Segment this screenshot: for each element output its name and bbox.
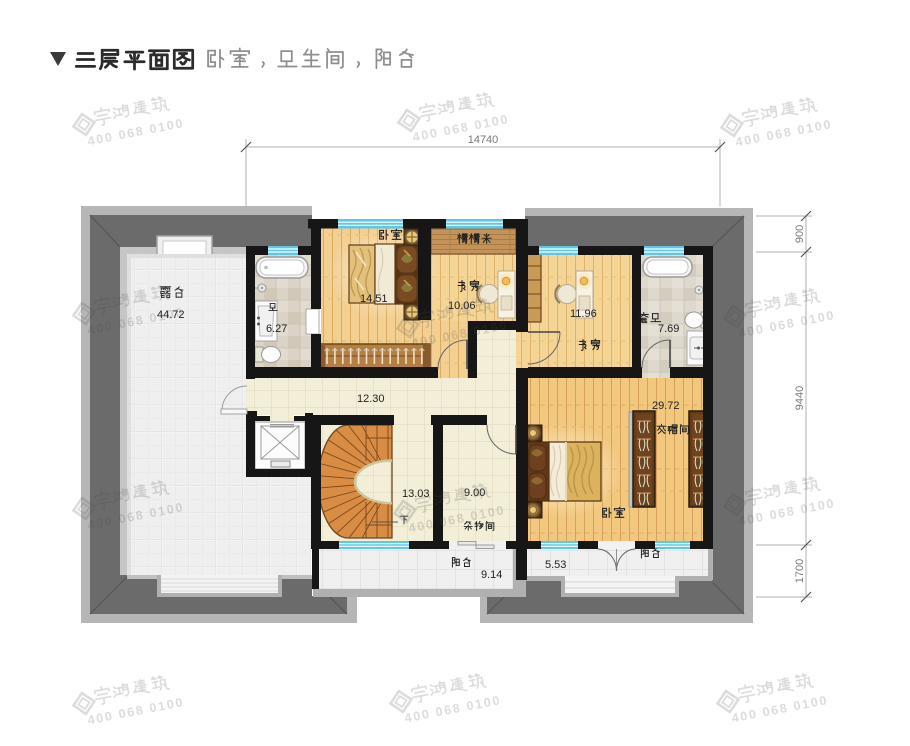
svg-text:11.96: 11.96 <box>570 308 597 320</box>
svg-text:14.51: 14.51 <box>360 293 388 305</box>
svg-text:9.14: 9.14 <box>481 569 502 581</box>
svg-text:13.03: 13.03 <box>402 488 430 500</box>
svg-text:1700: 1700 <box>794 559 806 583</box>
svg-text:12.30: 12.30 <box>357 393 385 405</box>
svg-text:14740: 14740 <box>468 134 499 146</box>
svg-text:5.53: 5.53 <box>545 559 566 571</box>
svg-text:6.27: 6.27 <box>266 323 287 335</box>
svg-text:9440: 9440 <box>794 386 806 410</box>
svg-text:7.69: 7.69 <box>658 323 679 335</box>
svg-text:29.72: 29.72 <box>652 400 680 412</box>
svg-text:900: 900 <box>794 225 806 243</box>
